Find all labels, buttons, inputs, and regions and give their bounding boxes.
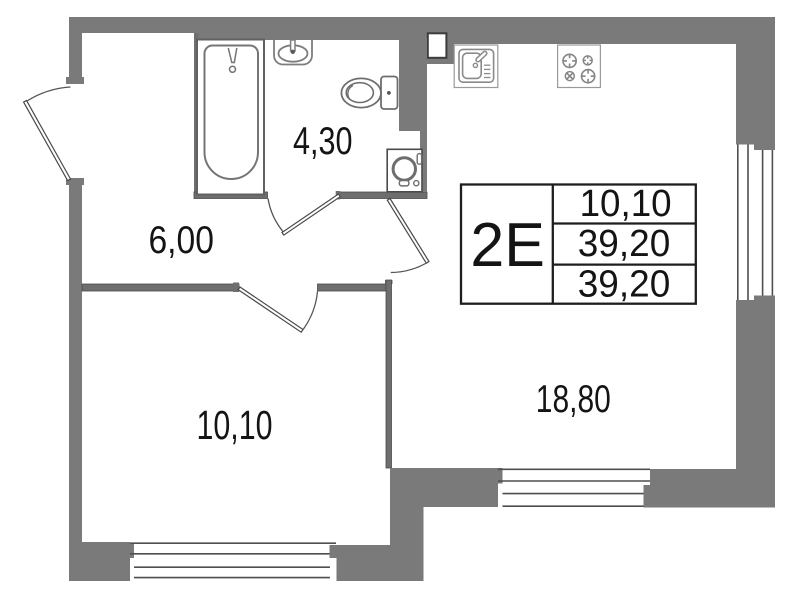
svg-text:6,00: 6,00 bbox=[148, 219, 214, 262]
svg-text:2E: 2E bbox=[470, 210, 545, 280]
svg-text:10,10: 10,10 bbox=[580, 182, 672, 225]
svg-text:4,30: 4,30 bbox=[293, 120, 353, 163]
svg-text:39,20: 39,20 bbox=[578, 222, 671, 265]
svg-text:10,10: 10,10 bbox=[197, 402, 273, 448]
svg-text:39,20: 39,20 bbox=[578, 263, 671, 306]
svg-text:18,80: 18,80 bbox=[536, 378, 611, 421]
